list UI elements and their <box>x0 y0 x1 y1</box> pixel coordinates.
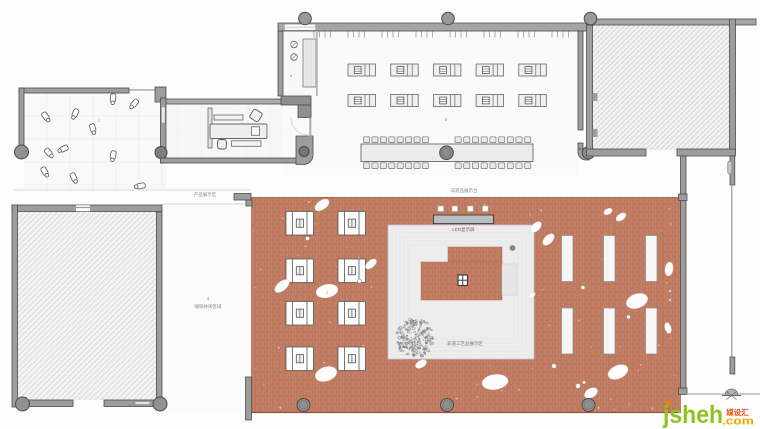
svg-text:非遗品展示台: 非遗品展示台 <box>451 187 478 194</box>
svg-text:非遗工艺品展示区: 非遗工艺品展示区 <box>447 340 483 347</box>
svg-text:.com: .com <box>722 416 754 428</box>
svg-text:咖啡休闲区域: 咖啡休闲区域 <box>195 303 222 310</box>
svg-text:产品展示区: 产品展示区 <box>194 191 217 198</box>
svg-text:jsheh: jsheh <box>662 401 723 429</box>
